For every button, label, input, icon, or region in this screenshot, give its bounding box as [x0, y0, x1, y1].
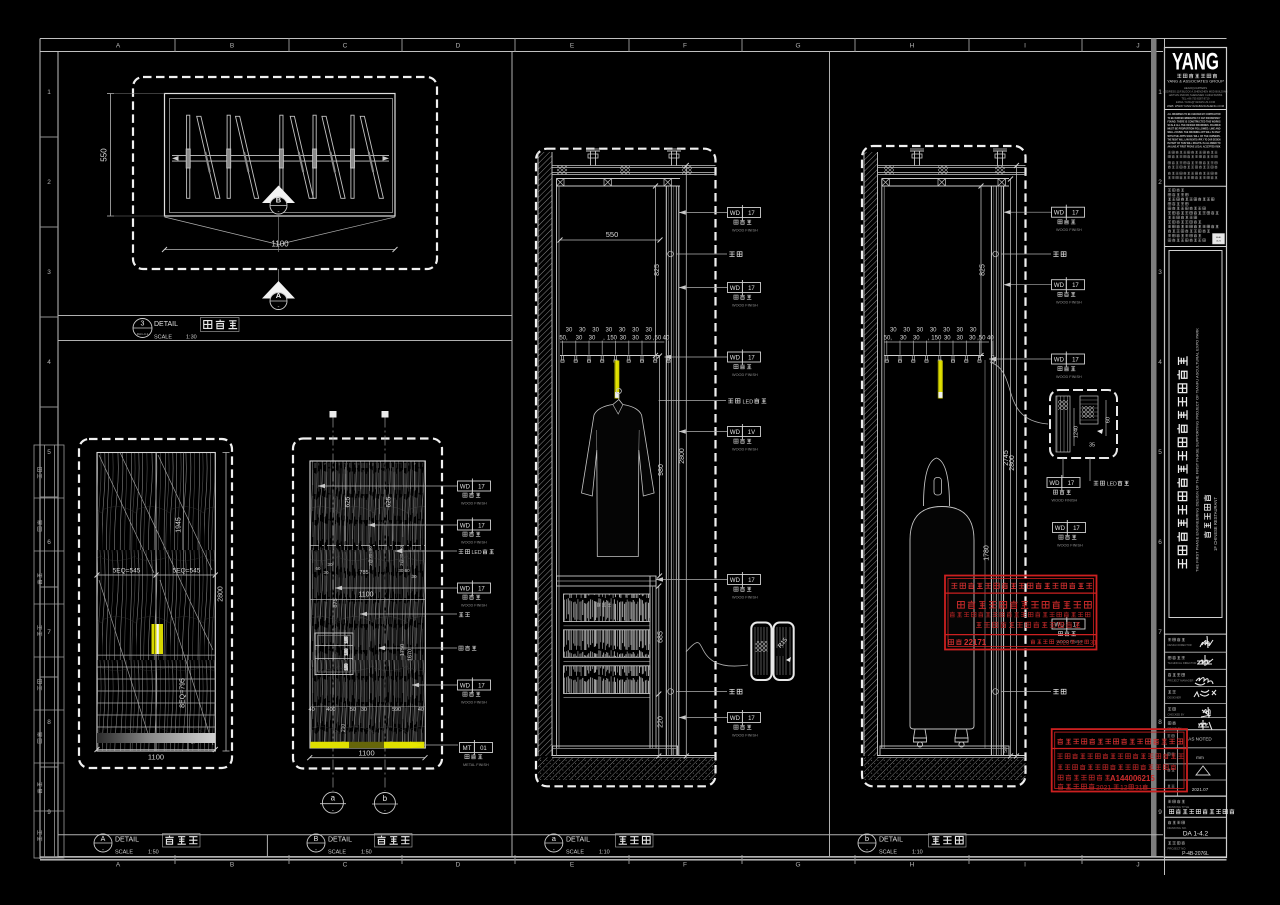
svg-text:F: F: [683, 43, 687, 50]
svg-text:WD: WD: [730, 716, 741, 722]
svg-text:1100: 1100: [358, 592, 373, 599]
svg-text:WOOD FINISH: WOOD FINISH: [461, 604, 487, 608]
svg-text:30: 30: [589, 336, 596, 342]
svg-text:H: H: [910, 43, 915, 50]
svg-text:1670: 1670: [408, 649, 414, 661]
svg-text:50: 50: [350, 707, 356, 713]
svg-text:30: 30: [327, 562, 333, 567]
svg-text:YANG: YANG: [1172, 49, 1219, 76]
svg-text:DESIGN DIRECTOR: DESIGN DIRECTOR: [1168, 643, 1192, 647]
svg-text:150: 150: [607, 336, 618, 342]
svg-text:1750: 1750: [400, 644, 406, 656]
svg-text:WOOD FINISH: WOOD FINISH: [732, 734, 758, 738]
svg-text:685: 685: [657, 631, 664, 643]
svg-text:210: 210: [341, 724, 347, 733]
svg-text:-: -: [384, 809, 386, 815]
svg-text:SEAL: SEAL: [1216, 236, 1222, 239]
svg-text:5: 5: [47, 449, 51, 456]
svg-text:SCALE: SCALE: [154, 335, 172, 341]
svg-text:YANG & ASSOCIATES GROUP: YANG & ASSOCIATES GROUP: [1167, 79, 1224, 84]
svg-text:J: J: [1136, 862, 1139, 869]
svg-text:17: 17: [478, 485, 485, 491]
svg-text:40: 40: [418, 707, 424, 713]
svg-text:5EQ=545: 5EQ=545: [113, 568, 141, 575]
svg-text:1100: 1100: [271, 240, 289, 249]
svg-text:8EQ=795: 8EQ=795: [180, 678, 187, 708]
svg-text:8: 8: [47, 719, 51, 726]
svg-text:625: 625: [345, 496, 352, 507]
svg-text:-: -: [332, 808, 334, 814]
svg-text:30: 30: [579, 328, 586, 334]
svg-text:WOOD FINISH: WOOD FINISH: [461, 701, 487, 705]
svg-text:17: 17: [1072, 211, 1079, 217]
svg-text:LED: LED: [1107, 482, 1117, 488]
svg-text:C: C: [343, 862, 348, 869]
svg-text:12: 12: [1077, 641, 1084, 647]
svg-text:7: 7: [1158, 629, 1162, 636]
svg-text:1F CHINESE RESTAURANT: 1F CHINESE RESTAURANT: [1213, 497, 1218, 551]
svg-text:B: B: [230, 43, 234, 50]
svg-text:8: 8: [1158, 719, 1162, 726]
svg-text:DA1-4.1: DA1-4.1: [137, 332, 149, 336]
svg-text:30: 30: [944, 336, 951, 342]
svg-text:-: -: [278, 209, 280, 215]
svg-text:1100: 1100: [148, 753, 164, 762]
svg-text:17: 17: [748, 578, 755, 584]
svg-text:60: 60: [315, 566, 321, 571]
svg-text:A: A: [116, 43, 121, 50]
svg-text:E: E: [570, 43, 575, 50]
svg-text:550: 550: [100, 148, 109, 162]
svg-text:17: 17: [478, 587, 485, 593]
svg-text:1780: 1780: [984, 545, 991, 561]
svg-text:METAL FINISH: METAL FINISH: [463, 763, 489, 767]
svg-text:12: 12: [1120, 785, 1128, 792]
svg-text:17: 17: [1072, 358, 1079, 364]
svg-text:30 60: 30 60: [398, 568, 410, 573]
svg-text:30: 30: [917, 328, 924, 334]
svg-text:30: 30: [323, 570, 329, 575]
svg-text:B: B: [314, 836, 319, 843]
svg-text:2800: 2800: [679, 448, 686, 464]
svg-text:220: 220: [657, 716, 664, 728]
svg-text:17: 17: [1068, 481, 1075, 487]
svg-text:180: 180: [344, 648, 349, 656]
svg-text:DESIGNER: DESIGNER: [1168, 695, 1182, 699]
svg-text:17: 17: [748, 356, 755, 362]
svg-text:9: 9: [47, 809, 51, 816]
svg-text:6: 6: [47, 539, 51, 546]
svg-text:31: 31: [1135, 785, 1143, 792]
svg-text:2800: 2800: [1009, 455, 1016, 471]
svg-text:30: 30: [632, 336, 639, 342]
svg-text:-: -: [315, 848, 317, 854]
svg-text:825: 825: [980, 264, 987, 276]
svg-text:50: 50: [191, 738, 197, 744]
svg-text:35: 35: [1089, 443, 1095, 449]
svg-text:2: 2: [47, 179, 51, 186]
svg-text:625: 625: [386, 496, 393, 507]
svg-text:4: 4: [47, 359, 51, 366]
svg-text:30: 30: [943, 328, 950, 334]
svg-text:30: 30: [411, 574, 417, 579]
svg-text:1:10: 1:10: [599, 850, 610, 856]
svg-text:HAITIAN 2ND RD,SHENZHEN CHINA: HAITIAN 2ND RD,SHENZHEN CHINA 518054: [1169, 93, 1223, 97]
svg-text:0125: 0125: [1216, 241, 1222, 243]
svg-text:3: 3: [141, 321, 145, 328]
svg-text:-: -: [553, 848, 555, 854]
svg-text:1945: 1945: [176, 517, 183, 533]
svg-text:WOOD FINISH: WOOD FINISH: [732, 596, 758, 600]
svg-text:1:10: 1:10: [912, 850, 923, 856]
svg-text:150: 150: [931, 336, 942, 342]
svg-text:1: 1: [1158, 89, 1162, 96]
svg-text:SCALE: SCALE: [566, 850, 584, 856]
svg-text:DETAIL: DETAIL: [566, 837, 590, 844]
svg-text:I: I: [1024, 862, 1026, 869]
svg-text:D: D: [456, 43, 461, 50]
svg-text:9: 9: [1158, 809, 1162, 816]
svg-text:30: 30: [645, 328, 652, 334]
svg-text:-: -: [278, 305, 280, 311]
svg-text:SCALE: SCALE: [879, 850, 897, 856]
svg-text:WD: WD: [1055, 526, 1066, 532]
svg-text:C: C: [343, 43, 348, 50]
svg-text:01: 01: [480, 746, 487, 752]
svg-text:2021.07: 2021.07: [1192, 787, 1209, 792]
svg-text:17: 17: [1072, 283, 1079, 289]
svg-text:AN LINE AT FIRST PROVE LEGAL A: AN LINE AT FIRST PROVE LEGAL ACCEPTED RI…: [1168, 145, 1222, 149]
svg-text:DRAWING NO.: DRAWING NO.: [1168, 826, 1187, 830]
svg-text:WOOD FINISH: WOOD FINISH: [1052, 499, 1078, 503]
svg-text:6: 6: [1158, 539, 1162, 546]
svg-text:WD: WD: [730, 578, 741, 584]
svg-text:5EQ=545: 5EQ=545: [173, 568, 201, 575]
svg-text:WD: WD: [460, 485, 471, 491]
svg-text:30: 30: [890, 328, 897, 334]
svg-text:CHECKED BY: CHECKED BY: [1168, 713, 1185, 717]
svg-text:40: 40: [309, 707, 315, 713]
svg-text:DRAWING TITLE: DRAWING TITLE: [1168, 805, 1190, 809]
svg-text:2021: 2021: [1096, 785, 1111, 792]
svg-text:WOOD FINISH: WOOD FINISH: [1056, 301, 1082, 305]
svg-text:WEB: WWW.YANGYANGBANGSHENG.COM: WEB: WWW.YANGYANGBANGSHENG.COM: [1167, 104, 1225, 108]
svg-text:A: A: [116, 862, 121, 869]
svg-text:WD: WD: [1049, 481, 1060, 487]
svg-text:17: 17: [478, 684, 485, 690]
svg-text:WOOD FINISH: WOOD FINISH: [1056, 228, 1082, 232]
svg-text:17: 17: [748, 211, 755, 217]
svg-text:b: b: [865, 834, 869, 843]
svg-text:1:30: 1:30: [186, 335, 197, 341]
svg-text:SCALE: SCALE: [115, 850, 133, 856]
svg-text:17: 17: [1073, 526, 1080, 532]
svg-text:WOOD FINISH: WOOD FINISH: [732, 229, 758, 233]
svg-text:3: 3: [47, 269, 51, 276]
svg-text:3@30=90: 3@30=90: [399, 546, 404, 566]
svg-text:30: 30: [619, 328, 626, 334]
svg-text:WD: WD: [730, 286, 741, 292]
svg-text:B: B: [230, 862, 234, 869]
svg-text:WOOD FINISH: WOOD FINISH: [732, 304, 758, 308]
svg-text:30: 30: [903, 328, 910, 334]
svg-text:17: 17: [748, 286, 755, 292]
svg-text:30: 30: [645, 336, 652, 342]
svg-text:-: -: [102, 848, 104, 854]
svg-text:30: 30: [900, 336, 907, 342]
svg-text:30: 30: [606, 328, 613, 334]
svg-text:mm: mm: [1196, 755, 1204, 760]
svg-text:150: 150: [344, 663, 349, 671]
svg-text:30: 30: [930, 328, 937, 334]
svg-text:WOOD FINISH: WOOD FINISH: [1056, 375, 1082, 379]
svg-text:1: 1: [47, 89, 51, 96]
svg-text:1:50: 1:50: [148, 850, 159, 856]
svg-text:,50: ,50: [977, 336, 986, 342]
svg-text:17: 17: [478, 524, 485, 530]
svg-text:2800: 2800: [218, 586, 225, 602]
svg-text:30: 30: [632, 328, 639, 334]
svg-text:TECHNICAL DIRECTOR: TECHNICAL DIRECTOR: [1168, 661, 1197, 665]
svg-text:DA 1-4.2: DA 1-4.2: [1183, 831, 1209, 838]
svg-text:-: -: [866, 848, 868, 854]
svg-text:30: 30: [913, 336, 920, 342]
svg-text:MT: MT: [463, 746, 472, 752]
svg-text:5: 5: [1158, 449, 1162, 456]
svg-text:F: F: [683, 862, 687, 869]
svg-text:WD: WD: [1054, 211, 1065, 217]
svg-text:,50: ,50: [653, 336, 662, 342]
svg-text:PROJECT NO.: PROJECT NO.: [1168, 847, 1187, 851]
svg-text:50,: 50,: [559, 336, 568, 342]
svg-text:HEADQUARTERS: HEADQUARTERS: [1184, 86, 1207, 90]
svg-text:550: 550: [606, 230, 619, 239]
svg-text:30: 30: [956, 336, 963, 342]
svg-text:LED: LED: [743, 400, 754, 406]
svg-text:A: A: [101, 836, 106, 843]
svg-text:31: 31: [1090, 641, 1097, 647]
svg-text:AS NOTED: AS NOTED: [1188, 737, 1212, 742]
svg-text:H: H: [910, 862, 915, 869]
svg-text:2023: 2023: [1056, 641, 1070, 647]
svg-text:A: A: [276, 291, 282, 300]
svg-text:30: 30: [361, 707, 367, 713]
svg-text:40: 40: [663, 336, 670, 342]
svg-text:30: 30: [576, 336, 583, 342]
svg-text:30: 30: [620, 336, 627, 342]
svg-text:3: 3: [1158, 269, 1162, 276]
svg-text:1100: 1100: [359, 749, 375, 758]
svg-text:J: J: [1136, 43, 1139, 50]
svg-text:17: 17: [748, 716, 755, 722]
svg-text:WD: WD: [460, 587, 471, 593]
svg-text:DETAIL: DETAIL: [328, 837, 352, 844]
svg-text:825: 825: [654, 264, 661, 276]
svg-text:590: 590: [392, 707, 401, 713]
svg-text:b: b: [383, 794, 388, 803]
svg-text:WD: WD: [460, 524, 471, 530]
svg-text:30: 30: [592, 328, 599, 334]
svg-text:I: I: [1024, 43, 1026, 50]
svg-text:30: 30: [970, 328, 977, 334]
svg-text:2: 2: [1158, 179, 1162, 186]
svg-text:1V: 1V: [748, 430, 755, 436]
svg-text:50,: 50,: [884, 336, 893, 342]
svg-text:DETAIL: DETAIL: [879, 837, 903, 844]
svg-text:WOOD FINISH: WOOD FINISH: [461, 502, 487, 506]
svg-text:185: 185: [344, 636, 349, 644]
svg-text:50: 50: [1003, 747, 1009, 753]
svg-text:WOOD FINISH: WOOD FINISH: [461, 541, 487, 545]
svg-text:60: 60: [1106, 417, 1112, 423]
svg-text:400: 400: [326, 707, 335, 713]
svg-text:1:50: 1:50: [361, 850, 372, 856]
svg-text:DETAIL: DETAIL: [154, 321, 178, 328]
svg-text:E: E: [570, 862, 575, 869]
svg-text:WOOD FINISH: WOOD FINISH: [732, 373, 758, 377]
svg-text:A144006215: A144006215: [1110, 774, 1155, 783]
svg-text:WD: WD: [730, 211, 741, 217]
svg-text:1240: 1240: [1074, 426, 1080, 438]
svg-text:30: 30: [969, 336, 976, 342]
svg-text:7: 7: [47, 629, 51, 636]
svg-text:785: 785: [359, 570, 368, 576]
svg-text:875: 875: [333, 598, 339, 607]
svg-text:WD: WD: [1054, 358, 1065, 364]
svg-text:LED: LED: [472, 550, 482, 556]
svg-text:30: 30: [956, 328, 963, 334]
svg-text:B: B: [276, 196, 282, 205]
svg-text:PROJECT MANAGER: PROJECT MANAGER: [1168, 678, 1194, 682]
svg-text:THE FIRST PHASE ENGINEERING DE: THE FIRST PHASE ENGINEERING DESIGN OF TH…: [1195, 328, 1200, 572]
svg-text:WD: WD: [730, 430, 741, 436]
svg-text:a: a: [331, 794, 336, 803]
svg-text:3@30=90: 3@30=90: [368, 546, 373, 566]
svg-text:SCALE: SCALE: [328, 850, 346, 856]
svg-text:22171: 22171: [964, 638, 987, 647]
svg-text:WOOD FINISH: WOOD FINISH: [732, 448, 758, 452]
svg-text:980: 980: [658, 464, 665, 476]
svg-text:DETAIL: DETAIL: [115, 837, 139, 844]
svg-text:WD: WD: [730, 356, 741, 362]
svg-text:G: G: [795, 862, 800, 869]
svg-text:WD: WD: [1054, 283, 1065, 289]
svg-text:WOOD FINISH: WOOD FINISH: [1057, 544, 1083, 548]
svg-text:D: D: [456, 862, 461, 869]
svg-text:4: 4: [1158, 359, 1162, 366]
svg-text:P-4B-2076L: P-4B-2076L: [1182, 851, 1209, 857]
svg-text:40: 40: [987, 336, 994, 342]
svg-text:30: 30: [566, 328, 573, 334]
svg-text:WD: WD: [460, 684, 471, 690]
svg-text:G: G: [795, 43, 800, 50]
